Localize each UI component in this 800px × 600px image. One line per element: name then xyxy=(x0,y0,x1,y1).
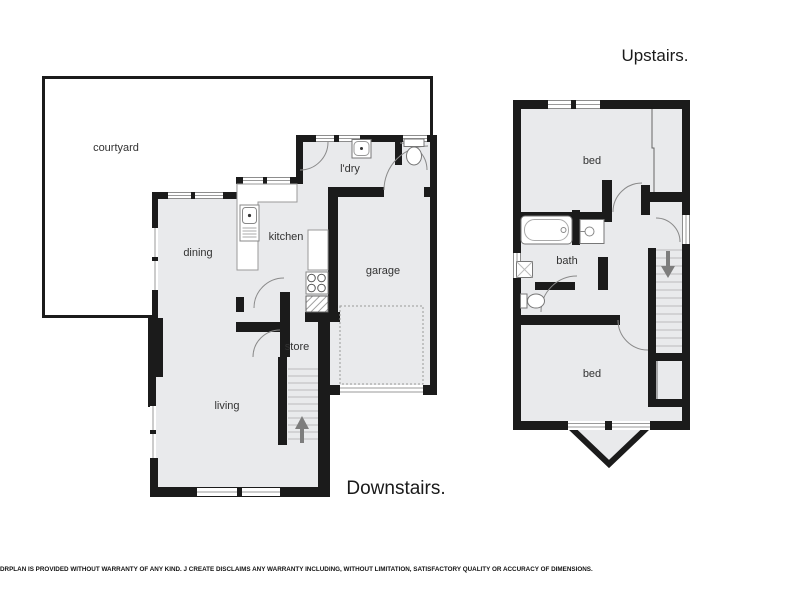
room-label-bed-front: bed xyxy=(583,155,601,167)
vanity-sink-icon xyxy=(580,220,604,244)
bathtub-icon xyxy=(521,216,572,244)
upstairs-floor-plan: bed bath bed Upstairs. xyxy=(513,46,690,464)
room-label-laundry: l'dry xyxy=(340,163,360,175)
kitchen-sink-icon xyxy=(240,205,259,241)
toilet-icon xyxy=(521,294,545,308)
tub-partition-wall xyxy=(572,210,580,245)
room-label-garage: garage xyxy=(366,265,400,277)
room-label-courtyard: courtyard xyxy=(93,142,139,154)
garage-door-opening xyxy=(340,385,423,395)
laundry-sink-icon xyxy=(352,140,371,159)
kitchen-tall-unit-icon xyxy=(308,230,328,270)
window xyxy=(197,488,280,496)
room-label-living: living xyxy=(214,400,239,412)
basin-icon xyxy=(517,262,533,278)
room-label-bed-rear: bed xyxy=(583,368,601,380)
room-label-kitchen: kitchen xyxy=(269,231,304,243)
floorplan-drawing: courtyard dining kitchen l'dry garage st… xyxy=(0,0,800,600)
window xyxy=(152,228,158,290)
downstairs-floor-plan: courtyard dining kitchen l'dry garage st… xyxy=(42,76,446,499)
window xyxy=(168,193,223,199)
stove-icon xyxy=(306,272,328,294)
hot-water-unit-icon xyxy=(306,296,328,312)
room-label-bath: bath xyxy=(556,255,577,267)
room-label-store: store xyxy=(285,341,309,353)
floorplan-page: courtyard dining kitchen l'dry garage st… xyxy=(0,0,800,600)
bay-window-glazing xyxy=(568,421,650,430)
garage-floor xyxy=(328,187,437,395)
window xyxy=(150,406,156,458)
room-label-dining: dining xyxy=(183,247,212,259)
window xyxy=(548,101,600,109)
upstairs-title: Upstairs. xyxy=(621,46,688,65)
window xyxy=(243,178,290,184)
wc-partition-wall xyxy=(395,138,402,165)
downstairs-title: Downstairs. xyxy=(346,478,445,499)
disclaimer-text: DRPLAN IS PROVIDED WITHOUT WARRANTY OF A… xyxy=(0,566,800,573)
window xyxy=(683,212,690,247)
